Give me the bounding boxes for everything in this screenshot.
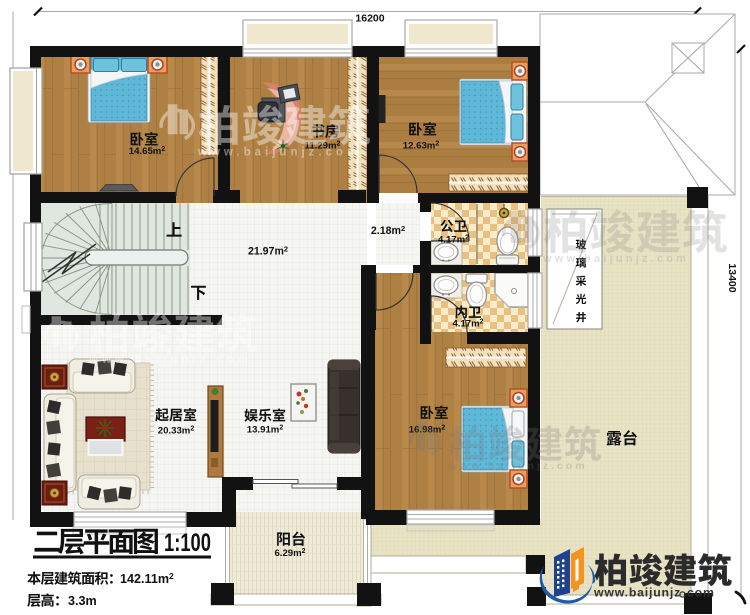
svg-text:21.97m2: 21.97m2 — [248, 245, 288, 258]
svg-text:www.baijunjz.com: www.baijunjz.com — [88, 354, 252, 366]
svg-text:3.3m: 3.3m — [68, 594, 97, 608]
svg-text:4.17m2: 4.17m2 — [452, 319, 483, 330]
svg-text:14.65m2: 14.65m2 — [129, 146, 166, 157]
svg-text:16200: 16200 — [355, 13, 384, 25]
svg-text:13.91m2: 13.91m2 — [247, 425, 284, 436]
svg-text:12.63m2: 12.63m2 — [403, 141, 440, 152]
svg-text:1:100: 1:100 — [164, 529, 211, 557]
svg-text:6.29m2: 6.29m2 — [274, 548, 305, 559]
svg-text:com: com — [687, 586, 715, 600]
svg-text:4.17m2: 4.17m2 — [438, 235, 469, 246]
svg-text:2.18m2: 2.18m2 — [371, 224, 405, 237]
svg-text:142.11m2: 142.11m2 — [120, 571, 174, 586]
svg-text:www.baijunjz: www.baijunjz — [593, 586, 681, 600]
svg-text:13400: 13400 — [726, 263, 738, 292]
svg-text:www.baijunjz.com: www.baijunjz.com — [542, 253, 689, 265]
svg-text:20.33m2: 20.33m2 — [158, 426, 195, 437]
svg-text:www.baijunjz.com: www.baijunjz.com — [448, 460, 588, 472]
svg-text:www.baijunjz.com: www.baijunjz.com — [197, 147, 361, 159]
